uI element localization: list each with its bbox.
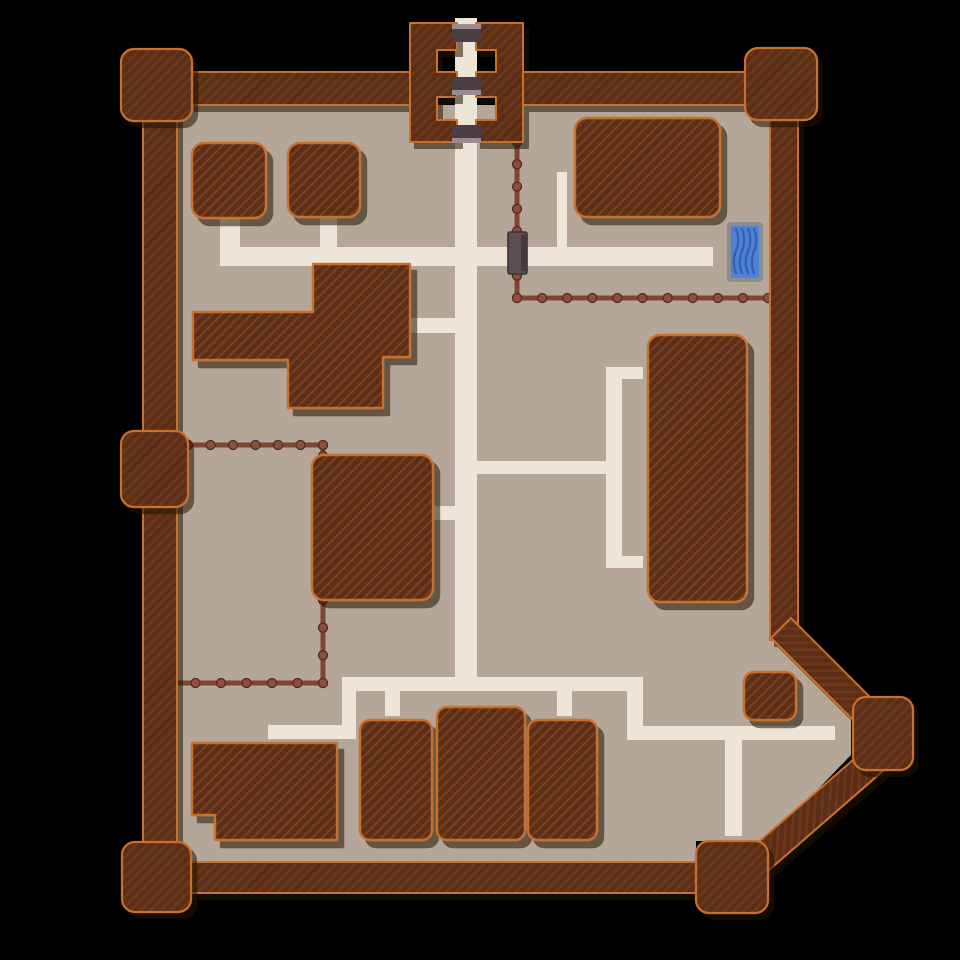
path-stub-hut-a <box>220 218 240 250</box>
building-east-longhouse <box>648 335 747 602</box>
fence-post <box>319 441 328 450</box>
path-bracket-vertical <box>606 367 622 568</box>
wall-bottom <box>180 862 700 893</box>
wall-top-right <box>521 72 747 105</box>
fence-post <box>217 679 226 688</box>
building-nw-hut-a <box>192 143 266 218</box>
path-south-horizontal <box>342 677 643 691</box>
fence-post <box>274 441 283 450</box>
fence-post <box>713 294 722 303</box>
gatehouse-left-block <box>410 23 457 142</box>
fence-post <box>319 651 328 660</box>
path-nw-horizontal <box>220 247 713 266</box>
path-se-stub-down <box>725 740 742 836</box>
path-stub-center-building <box>433 506 457 520</box>
building-south-row-2 <box>437 707 525 840</box>
tower-top-left <box>121 49 192 121</box>
wall-top-left <box>190 72 412 105</box>
building-south-row-1 <box>360 720 432 840</box>
fence-post <box>563 294 572 303</box>
fence-post <box>319 679 328 688</box>
path-main-vertical <box>455 18 477 690</box>
path-west-stub <box>411 318 457 333</box>
gate-bar-highlight <box>452 24 481 29</box>
fence-post <box>513 204 522 213</box>
building-center-stable <box>312 455 433 600</box>
tower-east-point <box>853 697 913 770</box>
fence-post <box>268 679 277 688</box>
tower-mid-west <box>121 431 188 507</box>
fence-post <box>738 294 747 303</box>
path-bracket-bottom-arm <box>620 556 643 568</box>
fence-post <box>229 441 238 450</box>
tower-bottom-center <box>696 841 768 913</box>
path-stub-hut-b <box>320 218 337 250</box>
gate-bar-highlight <box>452 90 481 95</box>
fence-post <box>251 441 260 450</box>
fence-post <box>206 441 215 450</box>
fence-post <box>513 182 522 191</box>
fence-post <box>513 294 522 303</box>
gate-bar <box>452 77 481 90</box>
gatehouse-right-block <box>476 23 523 142</box>
map-svg <box>0 0 960 960</box>
water-trough <box>727 222 763 282</box>
building-se-hut <box>744 672 796 720</box>
path-mid-horizontal <box>477 461 607 474</box>
path-bracket-top-arm <box>620 367 643 379</box>
building-south-row-3 <box>528 720 597 840</box>
building-nw-hut-b <box>288 143 360 217</box>
gate-bar <box>452 125 481 138</box>
fence-post <box>688 294 697 303</box>
fence-post <box>296 441 305 450</box>
tower-top-right <box>745 48 817 120</box>
wall-east <box>770 100 798 640</box>
building-ne-large <box>575 118 720 217</box>
path-ne-stub <box>557 172 567 250</box>
tower-bottom-left <box>122 842 191 912</box>
path-stub-row-1 <box>385 690 400 716</box>
path-sw-elbow-horizontal <box>268 725 356 739</box>
fence-post <box>513 160 522 169</box>
path-stub-row-2 <box>557 690 572 716</box>
fence-post <box>293 679 302 688</box>
village-map-canvas[interactable] <box>0 0 960 960</box>
fence-post <box>191 679 200 688</box>
gate-bar <box>452 29 481 42</box>
fence-post <box>638 294 647 303</box>
fence-post <box>319 623 328 632</box>
fence-post <box>538 294 547 303</box>
path-se-horizontal <box>627 726 835 740</box>
fence-post <box>242 679 251 688</box>
gate-bar-highlight <box>452 138 481 143</box>
fence-post <box>588 294 597 303</box>
fence-gate-shade <box>521 235 526 271</box>
fence-post <box>613 294 622 303</box>
fence-post <box>663 294 672 303</box>
